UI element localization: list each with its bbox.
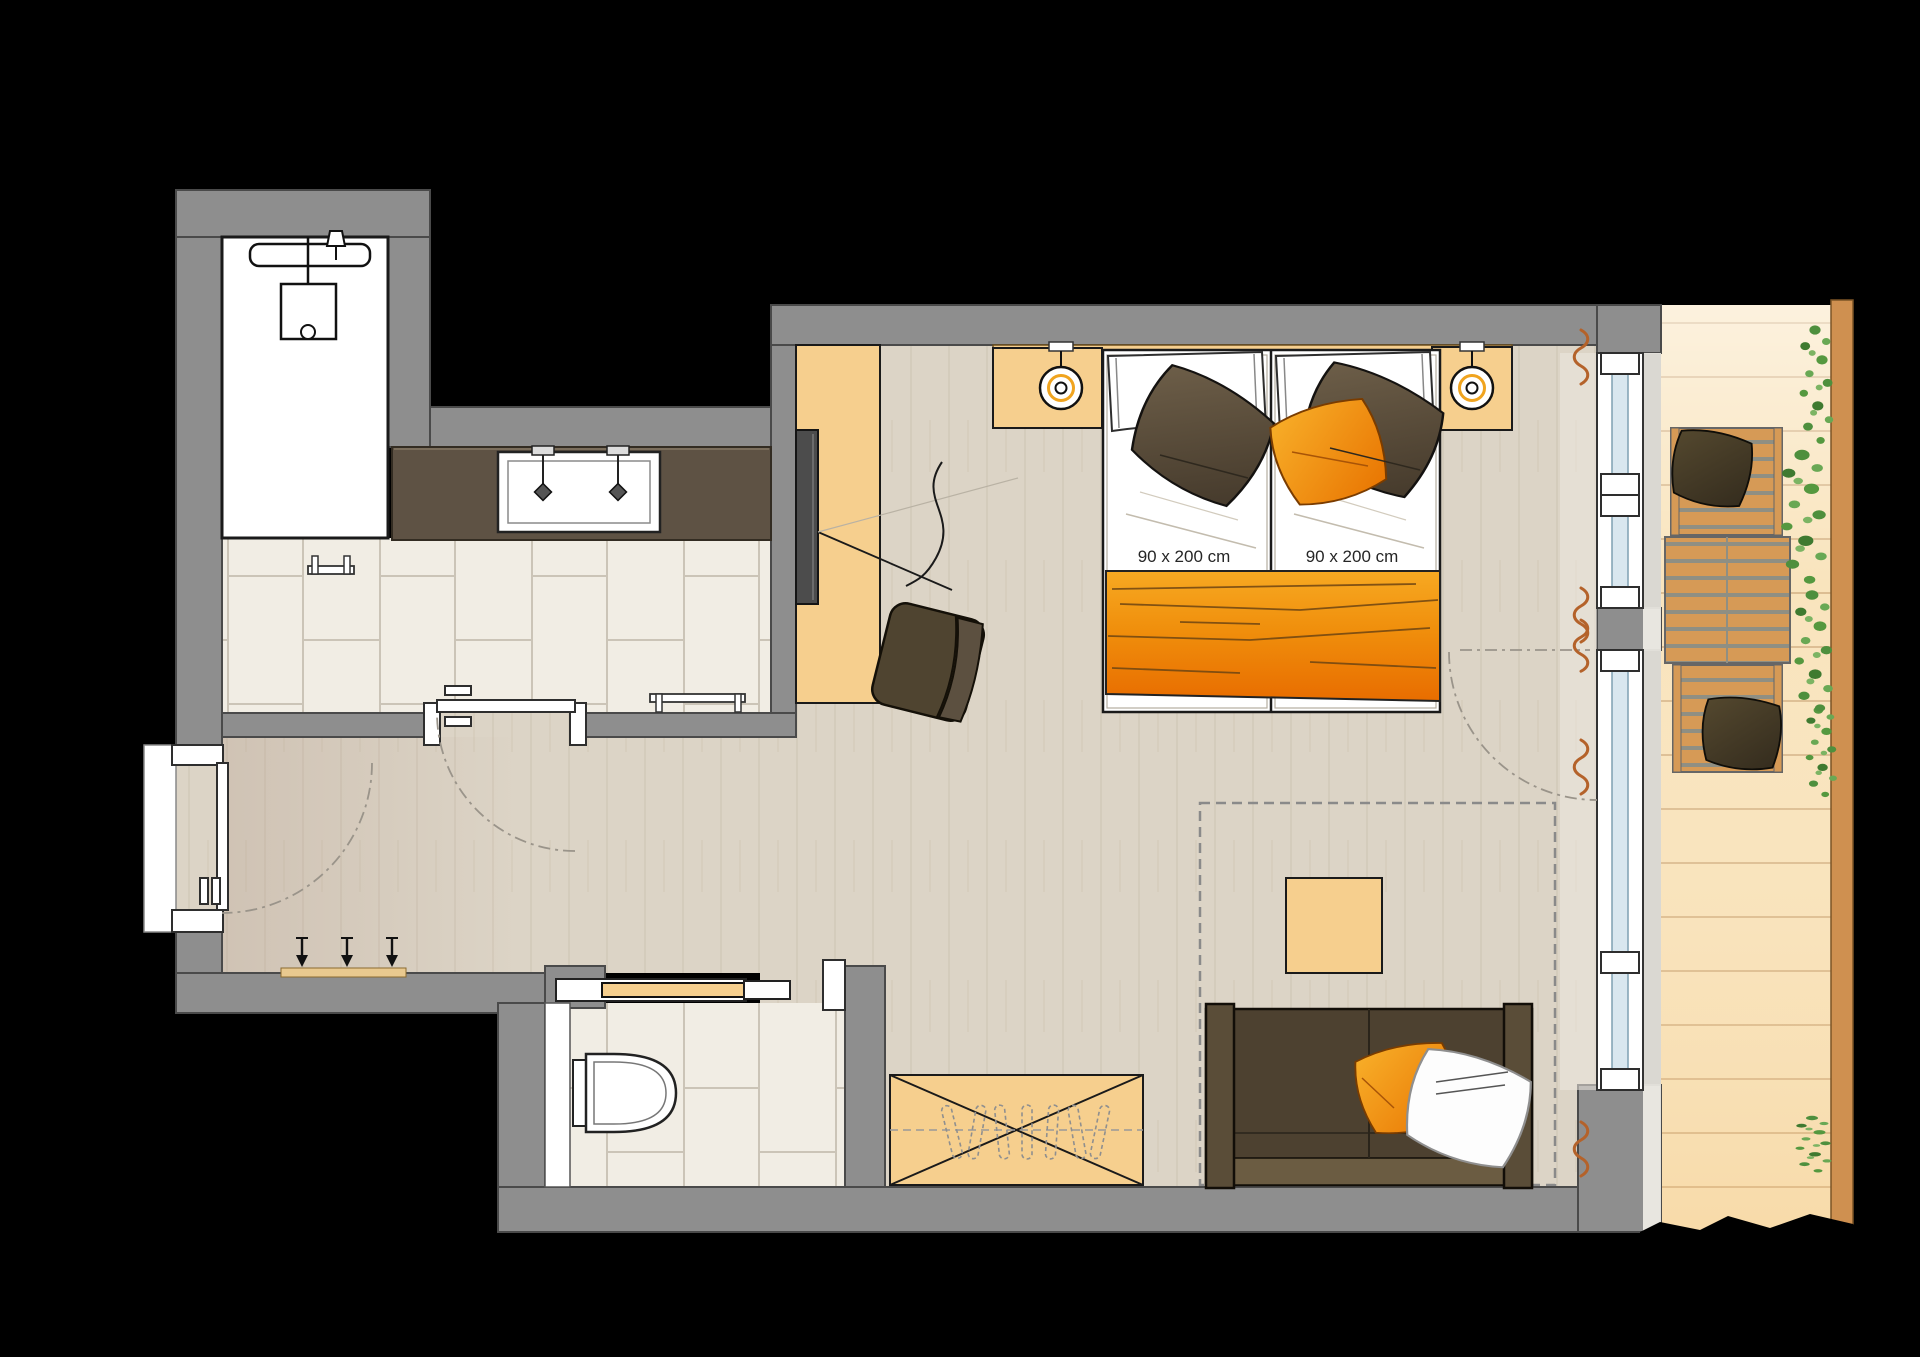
bathroom-tiles <box>222 538 771 713</box>
wardrobe <box>890 1075 1143 1185</box>
bed-size-label: 90 x 200 cm <box>1138 547 1231 566</box>
vanity-counter <box>392 446 771 540</box>
wall-step <box>388 237 430 447</box>
balcony-railing <box>1831 300 1853 1228</box>
window-upper <box>1597 353 1643 608</box>
shower-rail <box>250 244 370 266</box>
wall-bottom-main <box>498 1187 1640 1232</box>
window-sill-inner <box>1560 353 1597 1090</box>
wall-hall-bottom <box>176 973 545 1013</box>
shower-icon <box>222 231 388 574</box>
wall-hall-bath-right <box>575 713 796 737</box>
wall-wc-left <box>498 1003 545 1190</box>
toilet-icon <box>573 1054 676 1132</box>
balcony-chair <box>1673 665 1786 774</box>
bed-runner <box>1106 571 1440 701</box>
coffee-table <box>1286 878 1382 973</box>
balcony-table <box>1665 537 1790 663</box>
window-sill-outer <box>1643 353 1661 1232</box>
wall-hall-bath-left <box>222 713 430 737</box>
wall-bathroom-top <box>176 190 430 237</box>
wall-wc-right <box>845 966 885 1190</box>
tv-icon <box>796 430 818 604</box>
balcony-chair <box>1664 423 1782 535</box>
bed-size-label: 90 x 200 cm <box>1306 547 1399 566</box>
balcony-torn-edge <box>1640 1214 1862 1310</box>
window-lower <box>1597 650 1643 1090</box>
cistern-panel <box>545 1003 570 1187</box>
double-washbasin-icon <box>498 452 660 532</box>
sofa-armrest <box>1206 1004 1234 1188</box>
glass-pane <box>1612 666 1628 1074</box>
door-handle-icon <box>445 686 471 695</box>
wall-corner-topright <box>1597 305 1661 353</box>
wall-left-upper <box>176 190 222 763</box>
wall-bedroom-top <box>771 305 1661 345</box>
floor-plan-canvas: 90 x 200 cm 90 x 200 cm <box>0 0 1920 1357</box>
cushion-icon <box>1697 692 1786 774</box>
beds: 90 x 200 cm 90 x 200 cm <box>1103 350 1454 712</box>
entry-landing <box>144 745 176 932</box>
wall-bath-bedroom <box>771 305 796 737</box>
floor-plan: 90 x 200 cm 90 x 200 cm <box>0 0 1920 1357</box>
sofa <box>1206 1004 1541 1188</box>
wall-vanity-top <box>430 407 796 447</box>
door-handle-icon <box>200 878 208 904</box>
